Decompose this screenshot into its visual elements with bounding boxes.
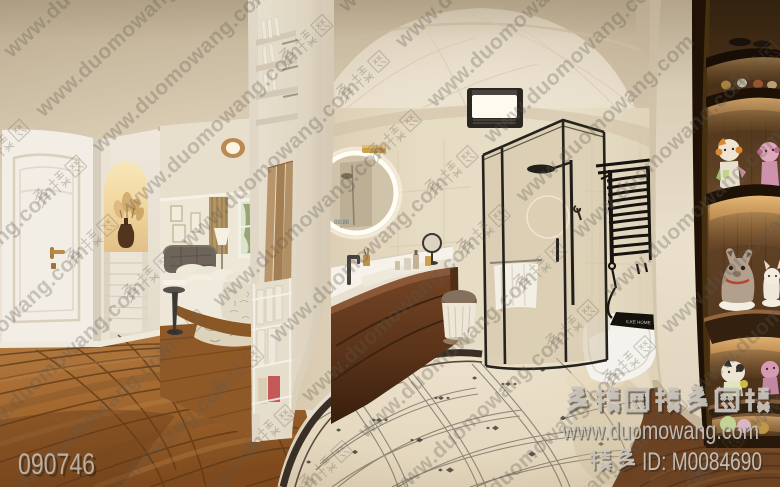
svg-text:www.duomowang.com: www.duomowang.com [561,417,759,445]
svg-text:ID: M0084690: ID: M0084690 [642,448,762,476]
svg-text:88:88: 88:88 [334,220,350,226]
svg-text:090746: 090746 [18,448,95,481]
